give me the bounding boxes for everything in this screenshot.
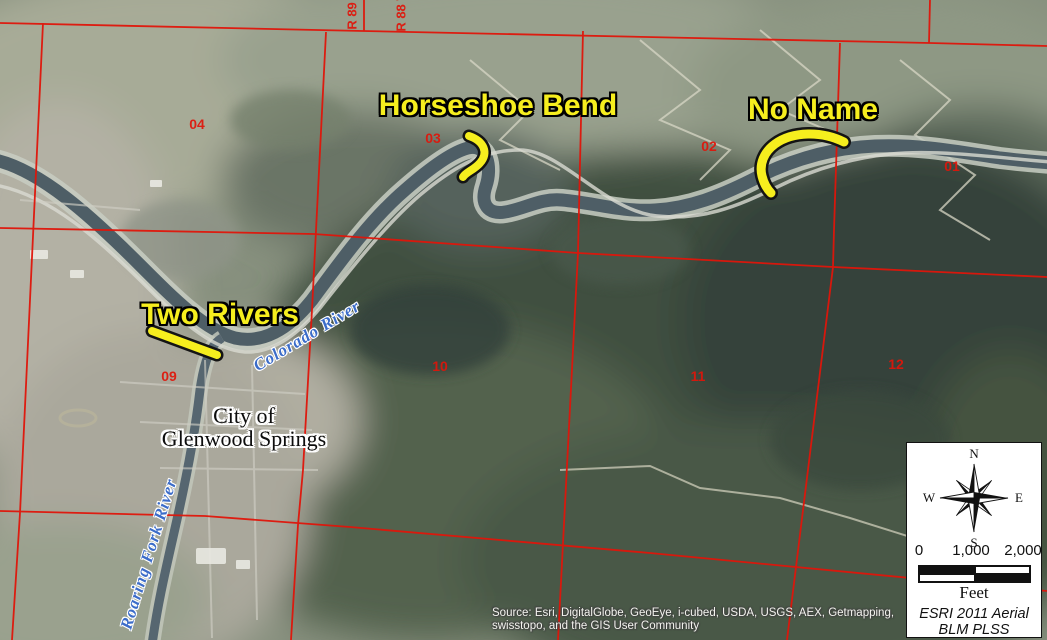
- scale-bar-segment: [919, 574, 975, 582]
- no-name-stream-highlight: [761, 134, 844, 193]
- scale-tick-0: 0: [915, 542, 923, 559]
- section-number-03: 03: [425, 130, 441, 146]
- section-number-09: 09: [161, 368, 177, 384]
- section-number-02: 02: [701, 138, 717, 154]
- horseshoe-bend-label: Horseshoe Bend: [379, 89, 617, 123]
- range-label-r88w: R 88 W: [394, 0, 409, 32]
- no-name-label: No Name: [748, 93, 878, 127]
- legend-box: N S W E 0 1,000 2,000 Feet ESRI 2011 Aer…: [906, 442, 1042, 638]
- scale-bar-segment: [919, 566, 975, 574]
- scale-tick-1000: 1,000: [952, 542, 990, 559]
- legend-source-line2: BLM PLSS: [907, 622, 1041, 638]
- scale-tick-2000: 2,000: [1004, 542, 1042, 559]
- two-rivers-label: Two Rivers: [141, 298, 299, 332]
- attribution-line2: swisstopo, and the GIS User Community: [492, 620, 894, 633]
- scale-bar-segment: [975, 574, 1031, 582]
- map-canvas[interactable]: Horseshoe Bend No Name Two Rivers City o…: [0, 0, 1047, 640]
- attribution-line1: Source: Esri, DigitalGlobe, GeoEye, i-cu…: [492, 607, 894, 620]
- compass-west-label: W: [923, 490, 936, 505]
- section-number-10: 10: [432, 358, 448, 374]
- scale-unit-label: Feet: [907, 583, 1041, 603]
- section-number-01: 01: [944, 158, 960, 174]
- compass-north-label: N: [969, 446, 979, 461]
- city-label-line2: Glenwood Springs: [162, 427, 326, 450]
- city-label: City of Glenwood Springs: [162, 404, 326, 450]
- compass-rose-icon: N S W E: [921, 445, 1027, 551]
- scale-bar-segment: [975, 566, 1031, 574]
- city-label-line1: City of: [162, 404, 326, 427]
- two-rivers-stream-highlight: [152, 331, 217, 355]
- horseshoe-bend-stream-highlight: [463, 136, 484, 177]
- scale-bar: [918, 565, 1031, 583]
- compass-east-label: E: [1015, 490, 1023, 505]
- section-number-12: 12: [888, 356, 904, 372]
- legend-source-line1: ESRI 2011 Aerial: [907, 606, 1041, 622]
- range-label-r89w: R 89 W: [345, 0, 360, 30]
- section-number-04: 04: [189, 116, 205, 132]
- section-number-11: 11: [691, 368, 706, 384]
- legend-credits: ESRI 2011 Aerial BLM PLSS: [907, 606, 1041, 638]
- attribution-text: Source: Esri, DigitalGlobe, GeoEye, i-cu…: [492, 607, 894, 633]
